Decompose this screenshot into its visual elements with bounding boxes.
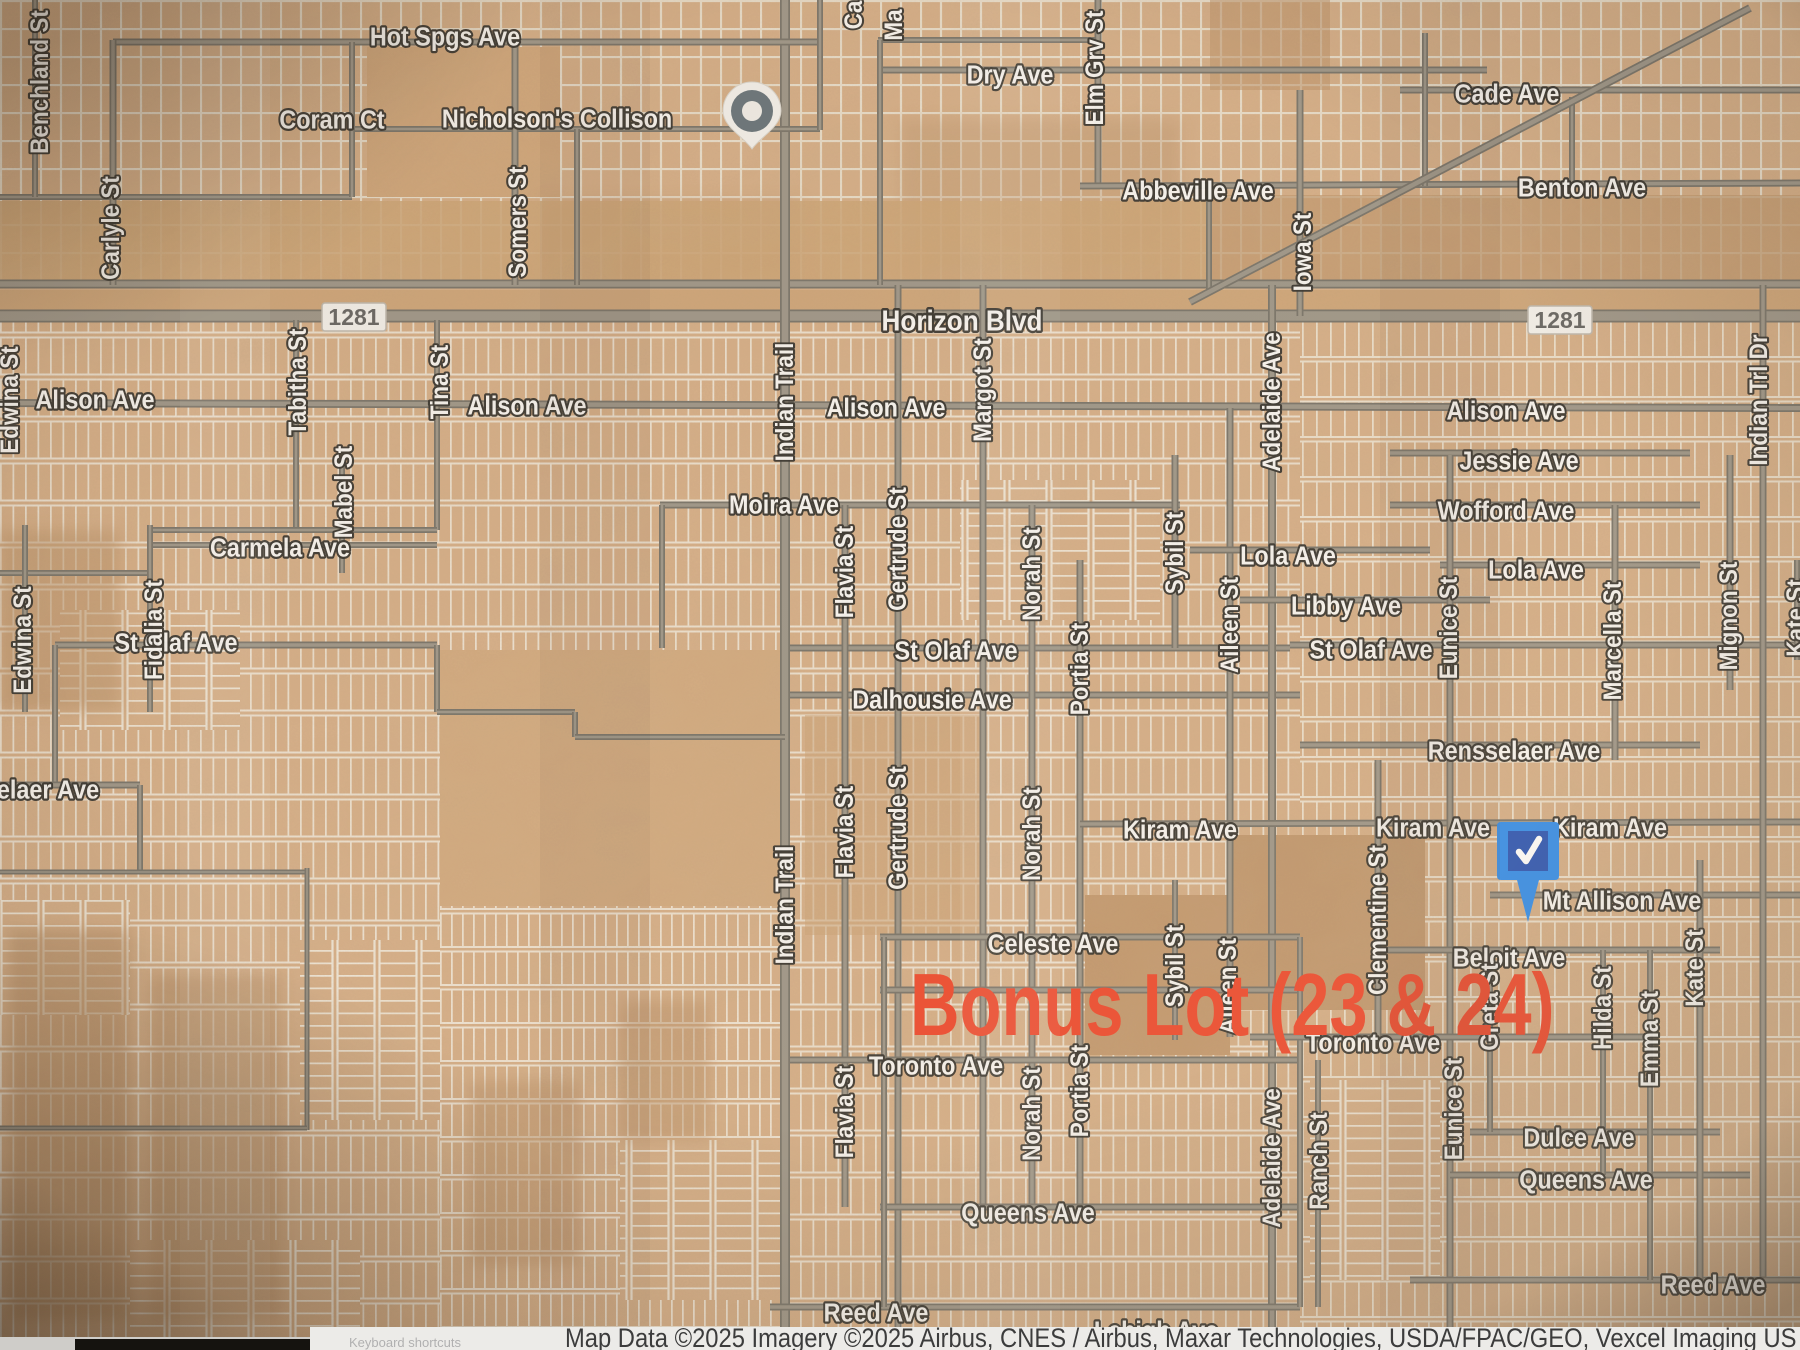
- svg-text:Map Data ©2025 Imagery ©2025 A: Map Data ©2025 Imagery ©2025 Airbus, CNE…: [565, 1324, 1796, 1350]
- svg-text:Keyboard shortcuts: Keyboard shortcuts: [349, 1335, 462, 1350]
